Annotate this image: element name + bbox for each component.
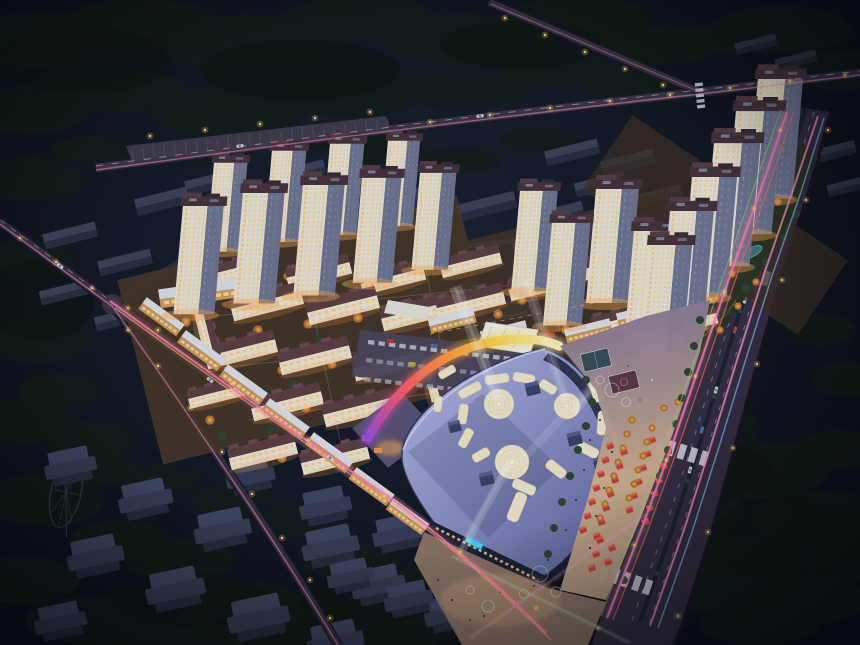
aerial-night-rendering [0,0,860,645]
vignette [0,0,860,645]
rendering-stage [0,0,860,645]
